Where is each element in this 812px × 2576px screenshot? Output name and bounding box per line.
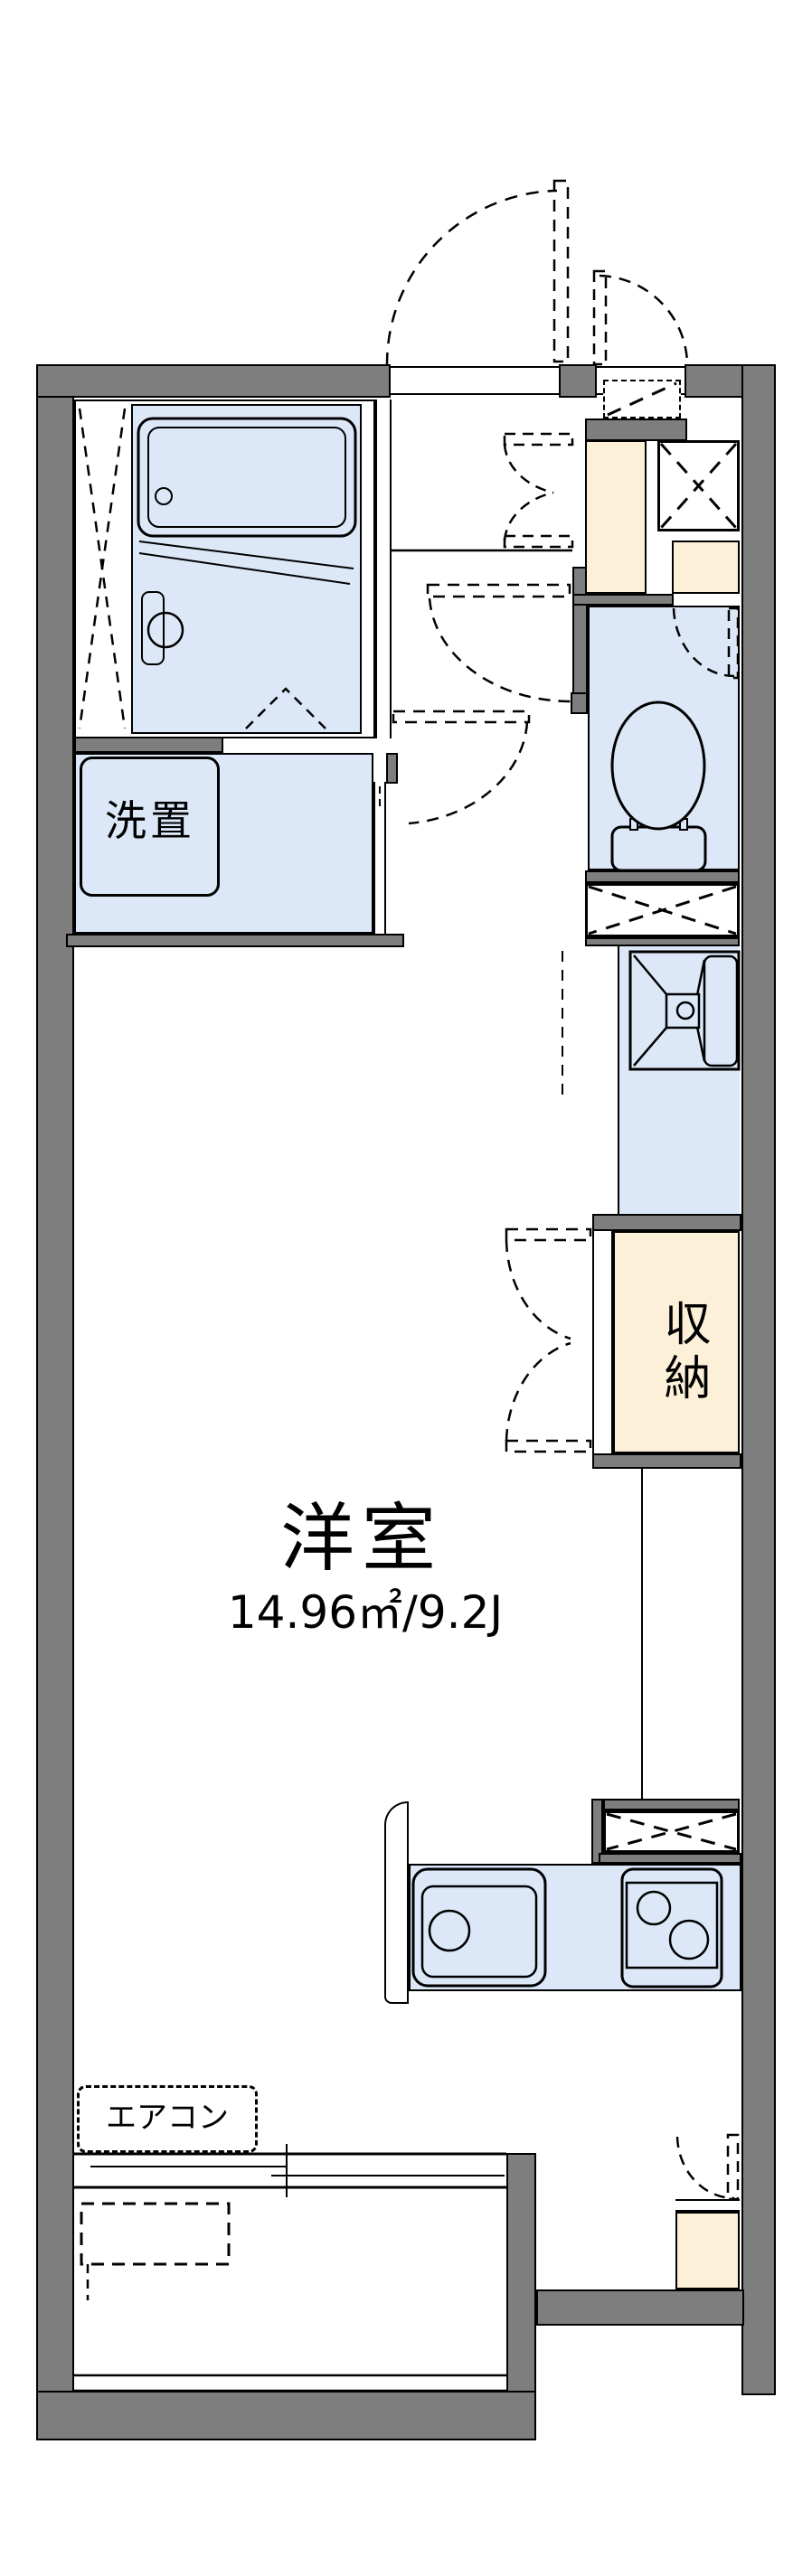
wall-door-stub: [571, 692, 588, 714]
wall-toilet-top: [572, 594, 674, 606]
aircon-label: エアコン: [77, 2102, 258, 2135]
pipe-space-lower: [585, 883, 740, 937]
wall-top-pier: [559, 364, 597, 398]
shoe-cabinet: [585, 440, 647, 594]
kitchen-end-panel: [384, 1801, 409, 2004]
wall-meterbox-bottom: [585, 418, 687, 441]
entrance-door: [387, 181, 568, 365]
wall-right: [741, 364, 776, 2395]
laundry-label: 洗置: [83, 799, 217, 842]
porch-closet: [675, 2212, 740, 2289]
toilet-room: [588, 606, 740, 870]
wall-kitchen-top: [603, 1799, 740, 1810]
wall-balcony-bottom: [36, 2391, 536, 2440]
entrance-door-sill: [391, 366, 559, 395]
floor-plan: 洋室 14.96㎡/9.2J 洗置 収納 エアコン: [0, 0, 812, 2576]
meter-box: [603, 380, 681, 418]
wall-left: [36, 364, 74, 2440]
hall-door: [428, 585, 571, 701]
bathroom: [131, 404, 362, 734]
main-room-size-label: 14.96㎡/9.2J: [184, 1589, 546, 1637]
outdoor-unit: [81, 2204, 229, 2300]
wall-kitchen-bottom: [599, 1853, 741, 1864]
laundry-door-strip: [373, 782, 386, 934]
wall-laundry-mainroom: [66, 934, 404, 947]
kitchen-counter: [409, 1864, 741, 1991]
wall-porch-bottom: [536, 2289, 744, 2326]
main-room-label: 洋室: [226, 1500, 497, 1578]
wall-storage-top: [592, 1214, 741, 1231]
cabinet-small: [672, 541, 740, 594]
wall-top-left: [36, 364, 391, 398]
washbasin-counter: [618, 946, 740, 1214]
wall-laundry-side: [386, 753, 398, 784]
shoe-cabinet-doors: [505, 434, 572, 547]
range-hood-vent: [603, 1810, 740, 1853]
storage-closet-doors: [506, 1229, 590, 1452]
wall-under-ps: [585, 937, 740, 946]
porch-closet-door: [677, 2135, 738, 2199]
wall-bath-laundry: [74, 737, 223, 753]
pipe-space-upper: [657, 440, 740, 531]
laundry-door: [380, 711, 529, 823]
wall-toilet-bottom: [585, 870, 740, 883]
wall-balcony-pillar: [506, 2153, 536, 2395]
wall-bath-hall-thin: [375, 400, 392, 738]
storage-closet-face: [592, 1231, 613, 1453]
wall-storage-bottom: [592, 1453, 741, 1469]
porch-closet-threshold: [675, 2199, 740, 2212]
storage-label: 収納: [649, 1276, 707, 1430]
